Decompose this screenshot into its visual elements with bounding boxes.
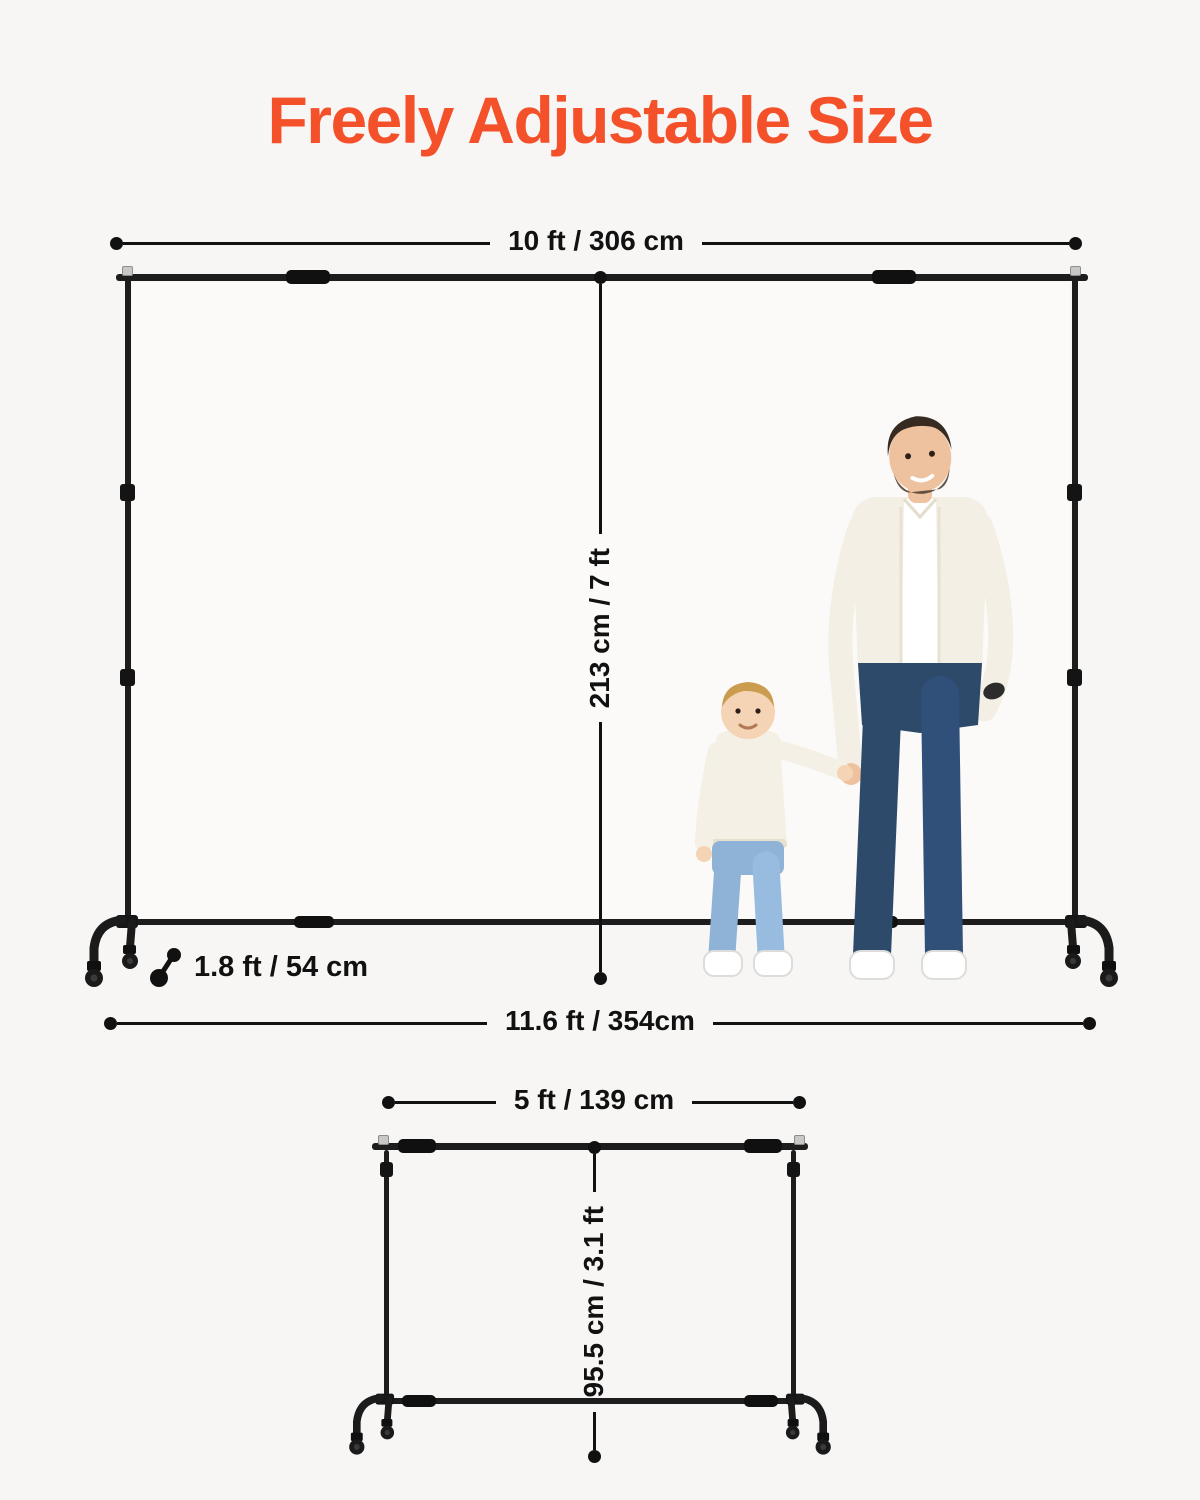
dimension-endpoint-dot: [793, 1096, 806, 1109]
dimension-endpoint-dot: [594, 271, 607, 284]
man-figure: [840, 413, 1007, 979]
small-right-pole: [791, 1150, 796, 1402]
caster-hub: [127, 958, 133, 964]
dimension-endpoint-dot: [594, 972, 607, 985]
dimension-line: [692, 1101, 793, 1104]
dimension-endpoint-dot: [104, 1017, 117, 1030]
small-left-pole: [384, 1150, 389, 1402]
large-top-width-label: 10 ft / 306 cm: [490, 225, 702, 257]
child-figure: [696, 682, 853, 976]
crossbar-end-screw: [378, 1135, 389, 1145]
dimension-line: [117, 1022, 487, 1025]
caster-hub: [91, 975, 98, 982]
caster-hub: [1106, 975, 1113, 982]
child-right-arm: [778, 749, 840, 770]
dimension-endpoint-dot: [1069, 237, 1082, 250]
caster-bracket: [1067, 945, 1080, 954]
pole-lock-knob: [1067, 669, 1082, 686]
pole-lock-knob: [1067, 484, 1082, 501]
crossbar-lock-collar: [402, 1395, 436, 1407]
pole-lock-knob: [120, 484, 135, 501]
dimension-line: [123, 242, 490, 245]
large-right-pole: [1072, 277, 1078, 925]
crossbar-lock-collar: [294, 916, 334, 928]
man-shoe: [922, 951, 966, 979]
dimension-line: [395, 1101, 496, 1104]
child-head: [721, 682, 775, 739]
dimension-endpoint-dot: [382, 1096, 395, 1109]
right-corner-casters: [1057, 906, 1157, 991]
small-top-width-label: 5 ft / 139 cm: [496, 1084, 692, 1116]
inner-leg: [387, 1400, 389, 1421]
dimension-endpoint-dot: [150, 969, 168, 987]
crossbar-lock-collar: [744, 1139, 782, 1153]
left-corner-casters: [46, 906, 146, 991]
child-shoe: [704, 951, 742, 976]
crossbar-lock-collar: [744, 1395, 778, 1407]
caster-hub: [354, 1444, 360, 1450]
man-leg: [940, 695, 944, 955]
child-eye: [755, 708, 760, 713]
child-shoe: [754, 951, 792, 976]
crossbar-lock-collar: [872, 270, 916, 284]
crossbar-lock-collar: [398, 1139, 436, 1153]
crossbar-end-screw: [794, 1135, 805, 1145]
small-top-width-dimension: 5 ft / 139 cm: [382, 1086, 806, 1118]
dimension-line: [593, 1412, 596, 1450]
child-hand: [696, 846, 712, 862]
large-height-dimension: 213 cm / 7 ft: [583, 271, 617, 985]
small-height-label: 95.5 cm / 3.1 ft: [578, 1192, 610, 1411]
family-photo: [620, 395, 1060, 1010]
child-hand: [837, 765, 853, 781]
small-right-corner-casters: [779, 1386, 864, 1458]
caster-bracket: [123, 945, 136, 954]
small-left-corner-casters: [316, 1386, 401, 1458]
dimension-endpoint-dot: [588, 1141, 601, 1154]
crossbar-end-screw: [1070, 266, 1081, 276]
inner-leg: [1071, 922, 1073, 947]
caster-bracket: [381, 1419, 392, 1427]
child-eye: [735, 708, 740, 713]
dimension-line: [599, 722, 602, 972]
caster-hub: [1070, 958, 1076, 964]
dimension-line: [713, 1022, 1083, 1025]
pole-lock-knob: [120, 669, 135, 686]
inner-leg: [791, 1400, 793, 1421]
caster-hub: [790, 1430, 795, 1435]
large-base-depth-label: 1.8 ft / 54 cm: [194, 951, 368, 984]
crossbar-end-screw: [122, 266, 133, 276]
dimension-line: [599, 284, 602, 534]
pole-lock-knob: [380, 1162, 393, 1177]
large-top-width-dimension: 10 ft / 306 cm: [110, 227, 1082, 259]
dimension-endpoint-dot: [1083, 1017, 1096, 1030]
inner-leg: [130, 922, 132, 947]
caster-bracket: [788, 1419, 799, 1427]
dimension-line: [593, 1154, 596, 1192]
man-leg: [872, 695, 883, 955]
pole-lock-knob: [787, 1162, 800, 1177]
large-height-label: 213 cm / 7 ft: [584, 534, 616, 722]
large-base-width-dimension: 11.6 ft / 354cm: [104, 1007, 1096, 1039]
child-leg: [766, 865, 771, 953]
child-leg: [722, 865, 728, 953]
product-size-infographic: Freely Adjustable Size 10 ft / 306 cm: [0, 0, 1200, 1500]
caster-hub: [385, 1430, 390, 1435]
dimension-endpoint-dot: [167, 948, 181, 962]
dimension-endpoint-dot: [588, 1450, 601, 1463]
large-left-pole: [125, 277, 131, 925]
crossbar-lock-collar: [286, 270, 330, 284]
dimension-line: [702, 242, 1069, 245]
depth-indicator-icon: [148, 946, 184, 988]
man-head: [884, 413, 956, 497]
caster-hub: [820, 1444, 826, 1450]
man-shoe: [850, 951, 894, 979]
small-height-dimension: 95.5 cm / 3.1 ft: [577, 1141, 611, 1463]
page-title: Freely Adjustable Size: [0, 82, 1200, 158]
large-base-depth-dimension: 1.8 ft / 54 cm: [148, 946, 368, 988]
dimension-endpoint-dot: [110, 237, 123, 250]
